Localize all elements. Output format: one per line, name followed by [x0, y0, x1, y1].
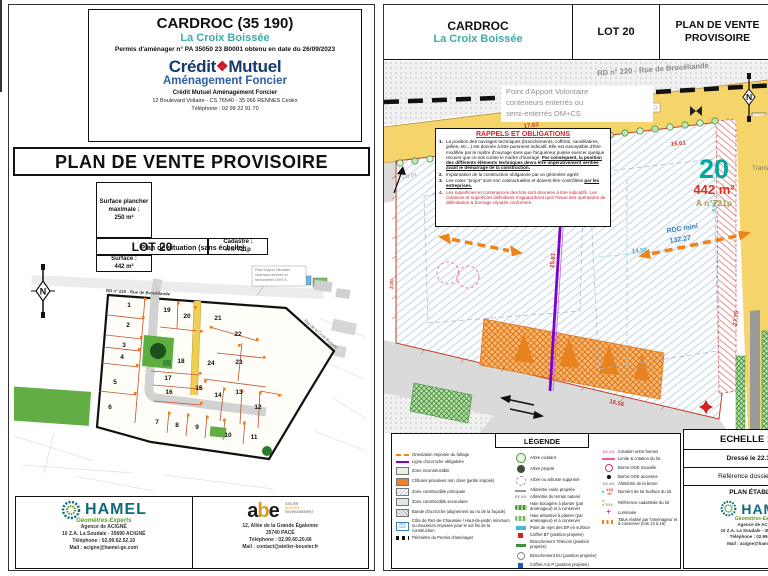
lot-label-23: 23	[235, 359, 243, 366]
legend-label: Zone inconstructible	[412, 469, 449, 474]
lot-label-10: 10	[224, 432, 232, 439]
legend-borne-new-icon	[605, 464, 613, 472]
legend-bt-box-icon	[518, 533, 523, 538]
rappels-item-2: 2. Implantation de la construction oblig…	[439, 172, 607, 177]
legend-col2: Arbre existant Arbre projeté Arbre ou ar…	[514, 453, 600, 570]
legend-label: Branchement Télécom (position projetée)	[530, 540, 600, 549]
lot-label-8: 8	[175, 422, 179, 429]
transformer-label: Transformateur	[752, 165, 768, 172]
lot-label-11: 11	[251, 434, 258, 441]
legend-luminaire-icon: +	[602, 511, 615, 516]
lot-summary-table: LOT 20 Surface plancher maximale : 250 m…	[96, 182, 268, 238]
hamel-phone: Téléphone : 02.99.62.52.10	[16, 538, 192, 545]
floor-area-cell: Surface plancher maximale : 250 m²	[96, 182, 152, 238]
rappels-num-1: 1.	[439, 139, 446, 171]
north-letter-right: N	[746, 92, 752, 102]
company-name: Crédit Mutuel Aménagement Foncier	[89, 90, 361, 96]
header-commune-cell: CARDROC La Croix Boissée	[384, 5, 573, 60]
legend-talus-icon	[602, 520, 615, 524]
rappels-item-1: 1. La position des ouvrages techniques (…	[439, 139, 607, 171]
legend-sym-xm: XXX m²	[604, 489, 615, 497]
lot-label-7: 7	[155, 419, 159, 426]
titleblock-hamel: HAMEL Géomètres-Experts Agence de ACIGNÉ…	[684, 500, 768, 547]
legend-purple-line-icon	[396, 461, 409, 463]
callout-line3: semi-enterrés OM+CS	[255, 278, 287, 282]
project-subtitle: La Croix Boissée	[89, 32, 361, 44]
lot-label-19: 19	[163, 307, 171, 314]
legend-label: Cotation entre bornes	[618, 450, 658, 455]
legend-label: Haie bocagère à planter (par aménageur) …	[530, 502, 600, 511]
abe-logo: abe ATELIER BOUVIER ENVIRONNEMENT	[193, 500, 369, 523]
abe-address1: 12, Allée de la Grande Égalonne	[193, 523, 369, 530]
rappels-title: RAPPELS ET OBLIGATIONS	[439, 131, 607, 138]
legend-rdc-icon: RDC NGF	[396, 522, 409, 531]
title-block: ECHELLE 1 / 200 Dressé le 22.11.2023 Réf…	[683, 429, 768, 569]
lot-label-4: 4	[120, 354, 124, 361]
legend-label: Zone constructible secondaire	[412, 500, 468, 505]
lot20-number: 20	[699, 154, 729, 184]
brand-mutuel: Mutuel	[228, 57, 281, 76]
lot-label-3: 3	[122, 342, 126, 349]
right-page-header: CARDROC La Croix Boissée LOT 20 PLAN DE …	[384, 5, 768, 60]
legend-zone-sec-icon	[396, 498, 409, 506]
lot-label-1: 1	[127, 302, 131, 309]
legend-box: LÉGENDE Orientation imposée du faîtage L…	[391, 433, 681, 569]
legend-col1: Orientation imposée du faîtage Ligne d'a…	[396, 453, 512, 543]
legend-garden-icon	[396, 478, 409, 486]
brand-credit: Crédit	[169, 57, 216, 76]
lot-label-20: 20	[183, 313, 191, 320]
hamel-block: HAMEL Géomètres-Experts Agence de ACIGNÉ…	[16, 497, 193, 568]
rappels-text-4: Les superficies et contenances des lots …	[446, 190, 605, 206]
header-commune: CARDROC	[447, 19, 508, 33]
header-doctitle-cell: PLAN DE VENTE PROVISOIRE	[660, 5, 768, 60]
company-phone: Téléphone : 02 99 22 91 70	[89, 106, 361, 112]
permit-line: Permis d'aménager n° PA 35050 23 B0001 o…	[89, 46, 361, 53]
legend-label: Numéro de lot Surface du lot	[618, 490, 671, 495]
lot-label-18: 18	[177, 358, 185, 365]
drawn-date: Dressé le 22.11.2023	[684, 450, 768, 468]
north-arrow-icon: N	[31, 264, 55, 318]
credit-mutuel-emblem-icon: ❖	[216, 58, 228, 74]
legend-hedge-bocage-icon	[515, 505, 527, 510]
document-title: PLAN DE VENTE PROVISOIRE	[13, 147, 370, 176]
lot-label-21: 21	[214, 315, 222, 322]
lot-label-24: 24	[207, 360, 215, 367]
legend-label: Luminaire	[618, 511, 636, 516]
green-field-west	[14, 386, 91, 425]
hamel-address: 10 Z.A. La Soudale - 35690 ACIGNÉ	[16, 531, 192, 538]
legend-perimeter-icon	[396, 536, 409, 540]
page-left: CARDROC (35 190) La Croix Boissée Permis…	[8, 4, 375, 571]
central-green-park	[142, 335, 174, 369]
abe-tagline: ATELIER BOUVIER ENVIRONNEMENT	[285, 503, 313, 514]
lot-label-5: 5	[113, 379, 117, 386]
lot-label-22: 22	[234, 331, 242, 338]
legend-label: Coffret BT (position projetée)	[530, 533, 584, 538]
legend-label: Zone constructible principale	[412, 490, 465, 495]
header-lot: LOT 20	[597, 26, 634, 38]
legend-lot-limit-icon	[602, 458, 615, 460]
legend-tree-existing-icon	[516, 453, 526, 463]
brand-subtitle: Aménagement Foncier	[89, 75, 361, 87]
hamel-name: HAMEL	[85, 501, 147, 519]
pav-line3: semi-enterrés OM+CS	[506, 108, 653, 119]
legend-tree-removed-icon	[516, 476, 526, 486]
floor-area-label: Surface plancher maximale :	[99, 198, 149, 214]
rappels-num-2: 2.	[439, 172, 446, 177]
page-right: CARDROC La Croix Boissée LOT 20 PLAN DE …	[383, 4, 768, 571]
legend-ridge-arrow-icon	[396, 454, 409, 456]
legend-band-icon	[396, 509, 409, 517]
legend-label: Référence cadastrale du lot	[618, 501, 669, 506]
legend-borne-old-icon	[607, 475, 611, 479]
hamel-mail: Mail : acigne@hamel-ge.com	[16, 545, 192, 552]
lot-label-17: 17	[164, 375, 172, 382]
floor-area-value: 250 m²	[114, 214, 133, 222]
legend-ep-outlet-icon	[516, 526, 526, 530]
measure-2-00: 2.00	[389, 279, 396, 289]
legend-hedge-shrub-icon	[515, 516, 527, 521]
west-verge	[384, 162, 396, 203]
legend-label: Arbre projeté	[530, 467, 554, 472]
legend-zone-main-icon	[396, 488, 409, 496]
developer-header-box: CARDROC (35 190) La Croix Boissée Permis…	[88, 9, 362, 142]
legend-lot-number-icon: XXXX m²	[602, 489, 615, 497]
situation-map: N Point d'Apport Volontaire conteneurs e…	[14, 261, 370, 493]
legend-label: Point de rejet des EP en surface	[530, 526, 590, 531]
legend-label: Coffret A.E.P (position projetée)	[530, 563, 589, 568]
legend-label: Orientation imposée du faîtage	[412, 453, 469, 458]
header-subdivision: La Croix Boissée	[433, 33, 522, 45]
hamel-logo-icon-small	[720, 500, 737, 517]
legend-title: LÉGENDE	[495, 433, 589, 448]
lot-label-14: 14	[214, 392, 222, 399]
lot-label-16: 16	[165, 389, 173, 396]
legend-label: Haie arbustive à planter (par aménageur)…	[530, 514, 600, 523]
dossier-reference: Référence dossier : 220622	[684, 468, 768, 486]
legend-tree-project-icon	[517, 465, 525, 473]
callout-line2: conteneurs enterrés ou	[255, 273, 288, 277]
lot20-cadastre: A n°721p	[696, 198, 732, 208]
legend-label: Borne OGE ancienne	[618, 475, 658, 480]
scale-label: ECHELLE 1 / 200	[684, 430, 768, 450]
legend-label: Bande d'accroche (alignement au nu de la…	[412, 510, 505, 515]
credit-mutuel-logo: Crédit❖Mutuel	[89, 57, 361, 77]
legend-aep-icon	[518, 563, 523, 568]
screenshot-canvas: { "colors":{"accent_teal":"#3dada5","cm_…	[0, 0, 768, 576]
footer-logos: HAMEL Géomètres-Experts Agence de ACIGNÉ…	[15, 496, 369, 569]
east-road-pavement	[750, 310, 760, 433]
legend-label: Arbre existant	[530, 456, 556, 461]
established-by-label: PLAN ÉTABLI PAR	[684, 486, 768, 500]
lot-label-12: 12	[254, 404, 262, 411]
rappels-item-4: 4. Les superficies et contenances des lo…	[439, 190, 607, 206]
legend-cotation-icon: XX.XX	[602, 450, 615, 455]
legend-label: Limite & cotation du lot	[618, 457, 660, 462]
lot-label-6: 6	[108, 404, 112, 411]
abe-letter-a: a	[247, 500, 257, 522]
legend-eu-icon	[517, 552, 525, 560]
pav-line1: Point d'Apport Volontaire	[506, 86, 653, 97]
lot-label-9: 9	[195, 424, 199, 431]
legend-label: Branchement EU (position projetée)	[530, 554, 597, 559]
rappels-text-3: Les cotes "projet" sont non contractuell…	[446, 178, 584, 183]
rappels-text-2: Implantation de la construction obligato…	[446, 172, 579, 177]
titleblock-mail: Mail : acigne@hamel-ge.com	[684, 541, 768, 547]
legend-inconstructible-icon	[396, 467, 409, 475]
header-lot-cell: LOT 20	[573, 5, 660, 60]
rappels-item-3: 3. Les cotes "projet" sont non contractu…	[439, 178, 607, 189]
legend-label: Côte de Rez-de-Chaussée / Haut-de-jardin…	[412, 519, 512, 533]
lot20-surface: 442 m²	[693, 182, 735, 197]
abe-tag3: ENVIRONNEMENT	[285, 510, 313, 514]
legend-label: Altimétrie du terrain naturel	[530, 495, 580, 500]
scan-edge-artifact	[0, 0, 2, 92]
situation-caption: Plan de situation (sans échelle)	[9, 245, 376, 252]
pav-line2: conteneurs enterrés ou	[506, 97, 653, 108]
header-doc-title: PLAN DE VENTE PROVISOIRE	[660, 19, 768, 45]
lot-label-15: 15	[195, 385, 203, 392]
abe-block: abe ATELIER BOUVIER ENVIRONNEMENT 12, Al…	[193, 497, 369, 568]
lot-label-2: 2	[126, 322, 130, 329]
legend-label: Arbre ou arbuste supprimé	[530, 478, 580, 483]
abe-letter-e: e	[269, 500, 279, 522]
rappels-num-3: 3.	[439, 178, 446, 189]
legend-altimetry-ground-icon: XX.XX	[514, 495, 527, 500]
legend-label: Ligne d'accroche obligatoire	[412, 460, 464, 465]
legend-label: Clôtures privatives non close (jardin im…	[412, 479, 494, 484]
north-letter: N	[40, 287, 47, 297]
legend-col3: XX.XXCotation entre bornes Limite & cota…	[602, 450, 678, 529]
east-green-strip-2	[762, 331, 768, 433]
abe-address2: 35740 PACÉ	[193, 530, 369, 537]
east-green-strip-1	[736, 356, 745, 433]
callout-line1: Point d'Apport Volontaire	[255, 268, 290, 272]
legend-label: Altimétrie voirie projetée	[530, 488, 575, 493]
lot-label-13: 13	[235, 389, 243, 396]
abe-mail: Mail : contact@atelier-bouvier.fr	[193, 544, 369, 551]
commune-title: CARDROC (35 190)	[89, 15, 361, 32]
legend-label: Périmètre du Permis d'aménager	[412, 536, 473, 541]
rappels-num-4: 4.	[439, 190, 446, 206]
hamel-logo-icon	[61, 500, 81, 520]
legend-telecom-icon	[516, 544, 526, 547]
legend-label: Borne OGE nouvelle	[618, 466, 656, 471]
hamel-agency: Agence de ACIGNÉ	[16, 524, 192, 531]
abe-phone: Téléphone : 02.99.60.20.66	[193, 537, 369, 544]
company-address: 12 Boulevard Voltaire - CS 76540 - 35 06…	[89, 98, 361, 104]
titleblock-hamel-name: HAMEL	[741, 501, 768, 517]
rappels-box: RAPPELS ET OBLIGATIONS 1. La position de…	[435, 128, 611, 227]
legend-label: Altimétrie de la borne	[618, 482, 658, 487]
abe-letter-b: b	[257, 500, 268, 522]
legend-cadastre-ref-icon: A n°XXX	[602, 499, 615, 508]
legend-altimetry-road-icon	[515, 490, 526, 492]
legend-label: Talus réalisé par l'aménageur et à conse…	[618, 518, 678, 527]
legend-borne-alt-icon: XX.XX	[602, 482, 615, 487]
pav-label: Point d'Apport Volontaire conteneurs ent…	[501, 86, 653, 122]
